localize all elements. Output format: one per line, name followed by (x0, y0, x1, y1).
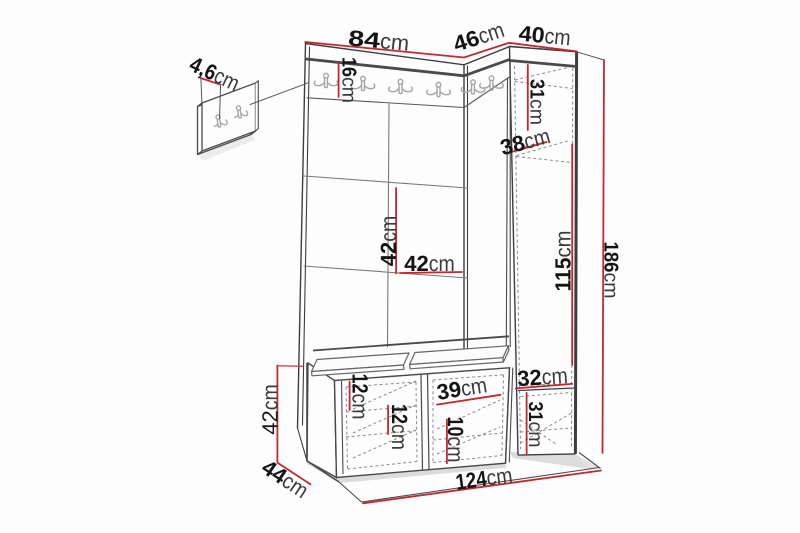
svg-text:32cm: 32cm (516, 363, 568, 391)
svg-text:12cm: 12cm (388, 404, 413, 450)
svg-text:42cm: 42cm (404, 251, 454, 276)
svg-text:186cm: 186cm (600, 242, 622, 299)
svg-text:10cm: 10cm (444, 417, 469, 463)
svg-text:42cm: 42cm (257, 384, 282, 434)
svg-text:12cm: 12cm (348, 374, 373, 420)
svg-text:31cm: 31cm (524, 402, 546, 448)
svg-text:16cm: 16cm (338, 57, 360, 103)
svg-text:31cm: 31cm (526, 79, 548, 125)
svg-text:42cm: 42cm (376, 216, 401, 266)
svg-text:40cm: 40cm (518, 21, 572, 51)
svg-text:115cm: 115cm (550, 231, 575, 292)
